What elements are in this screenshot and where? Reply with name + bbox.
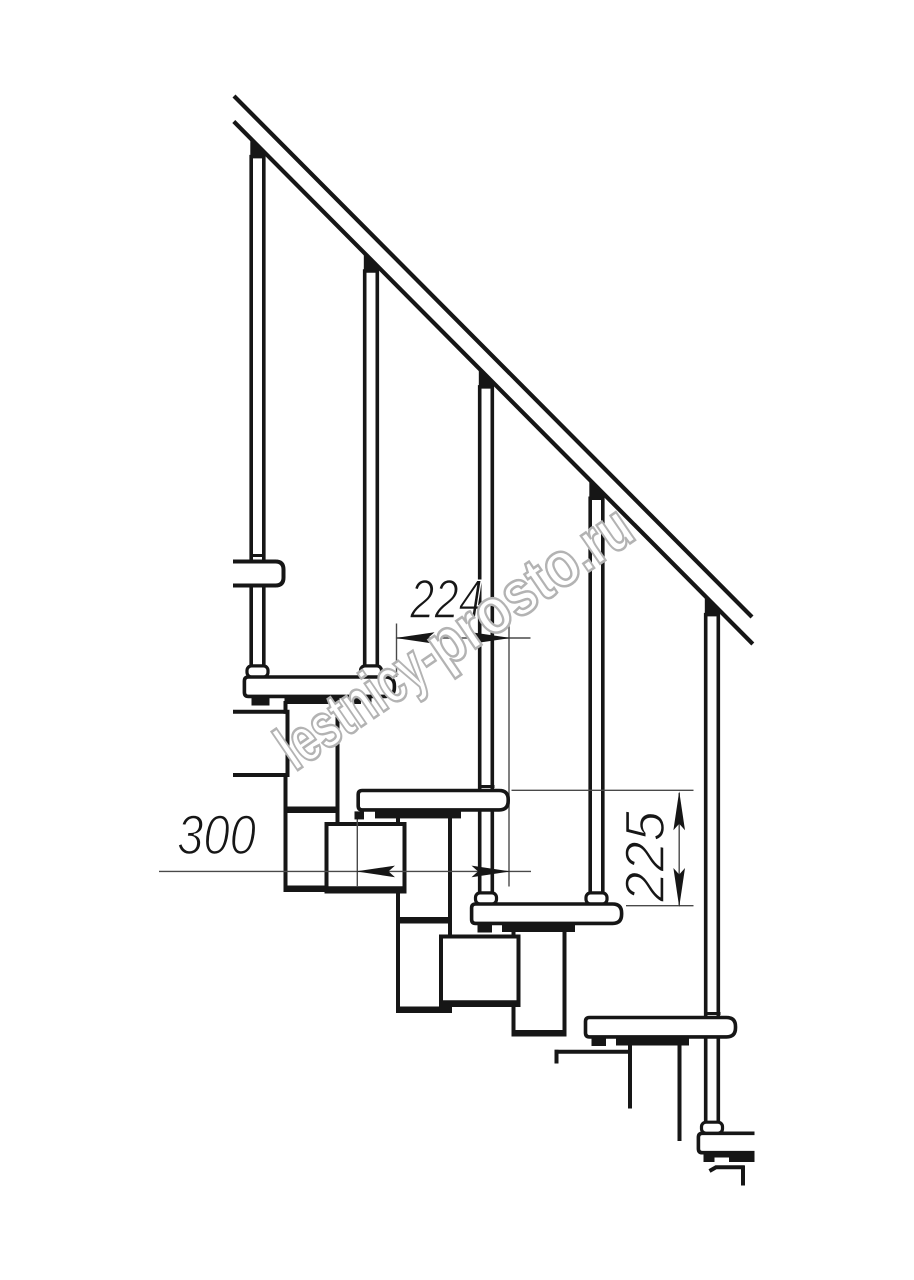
svg-text:225: 225 xyxy=(613,810,676,903)
svg-text:300: 300 xyxy=(177,803,256,866)
